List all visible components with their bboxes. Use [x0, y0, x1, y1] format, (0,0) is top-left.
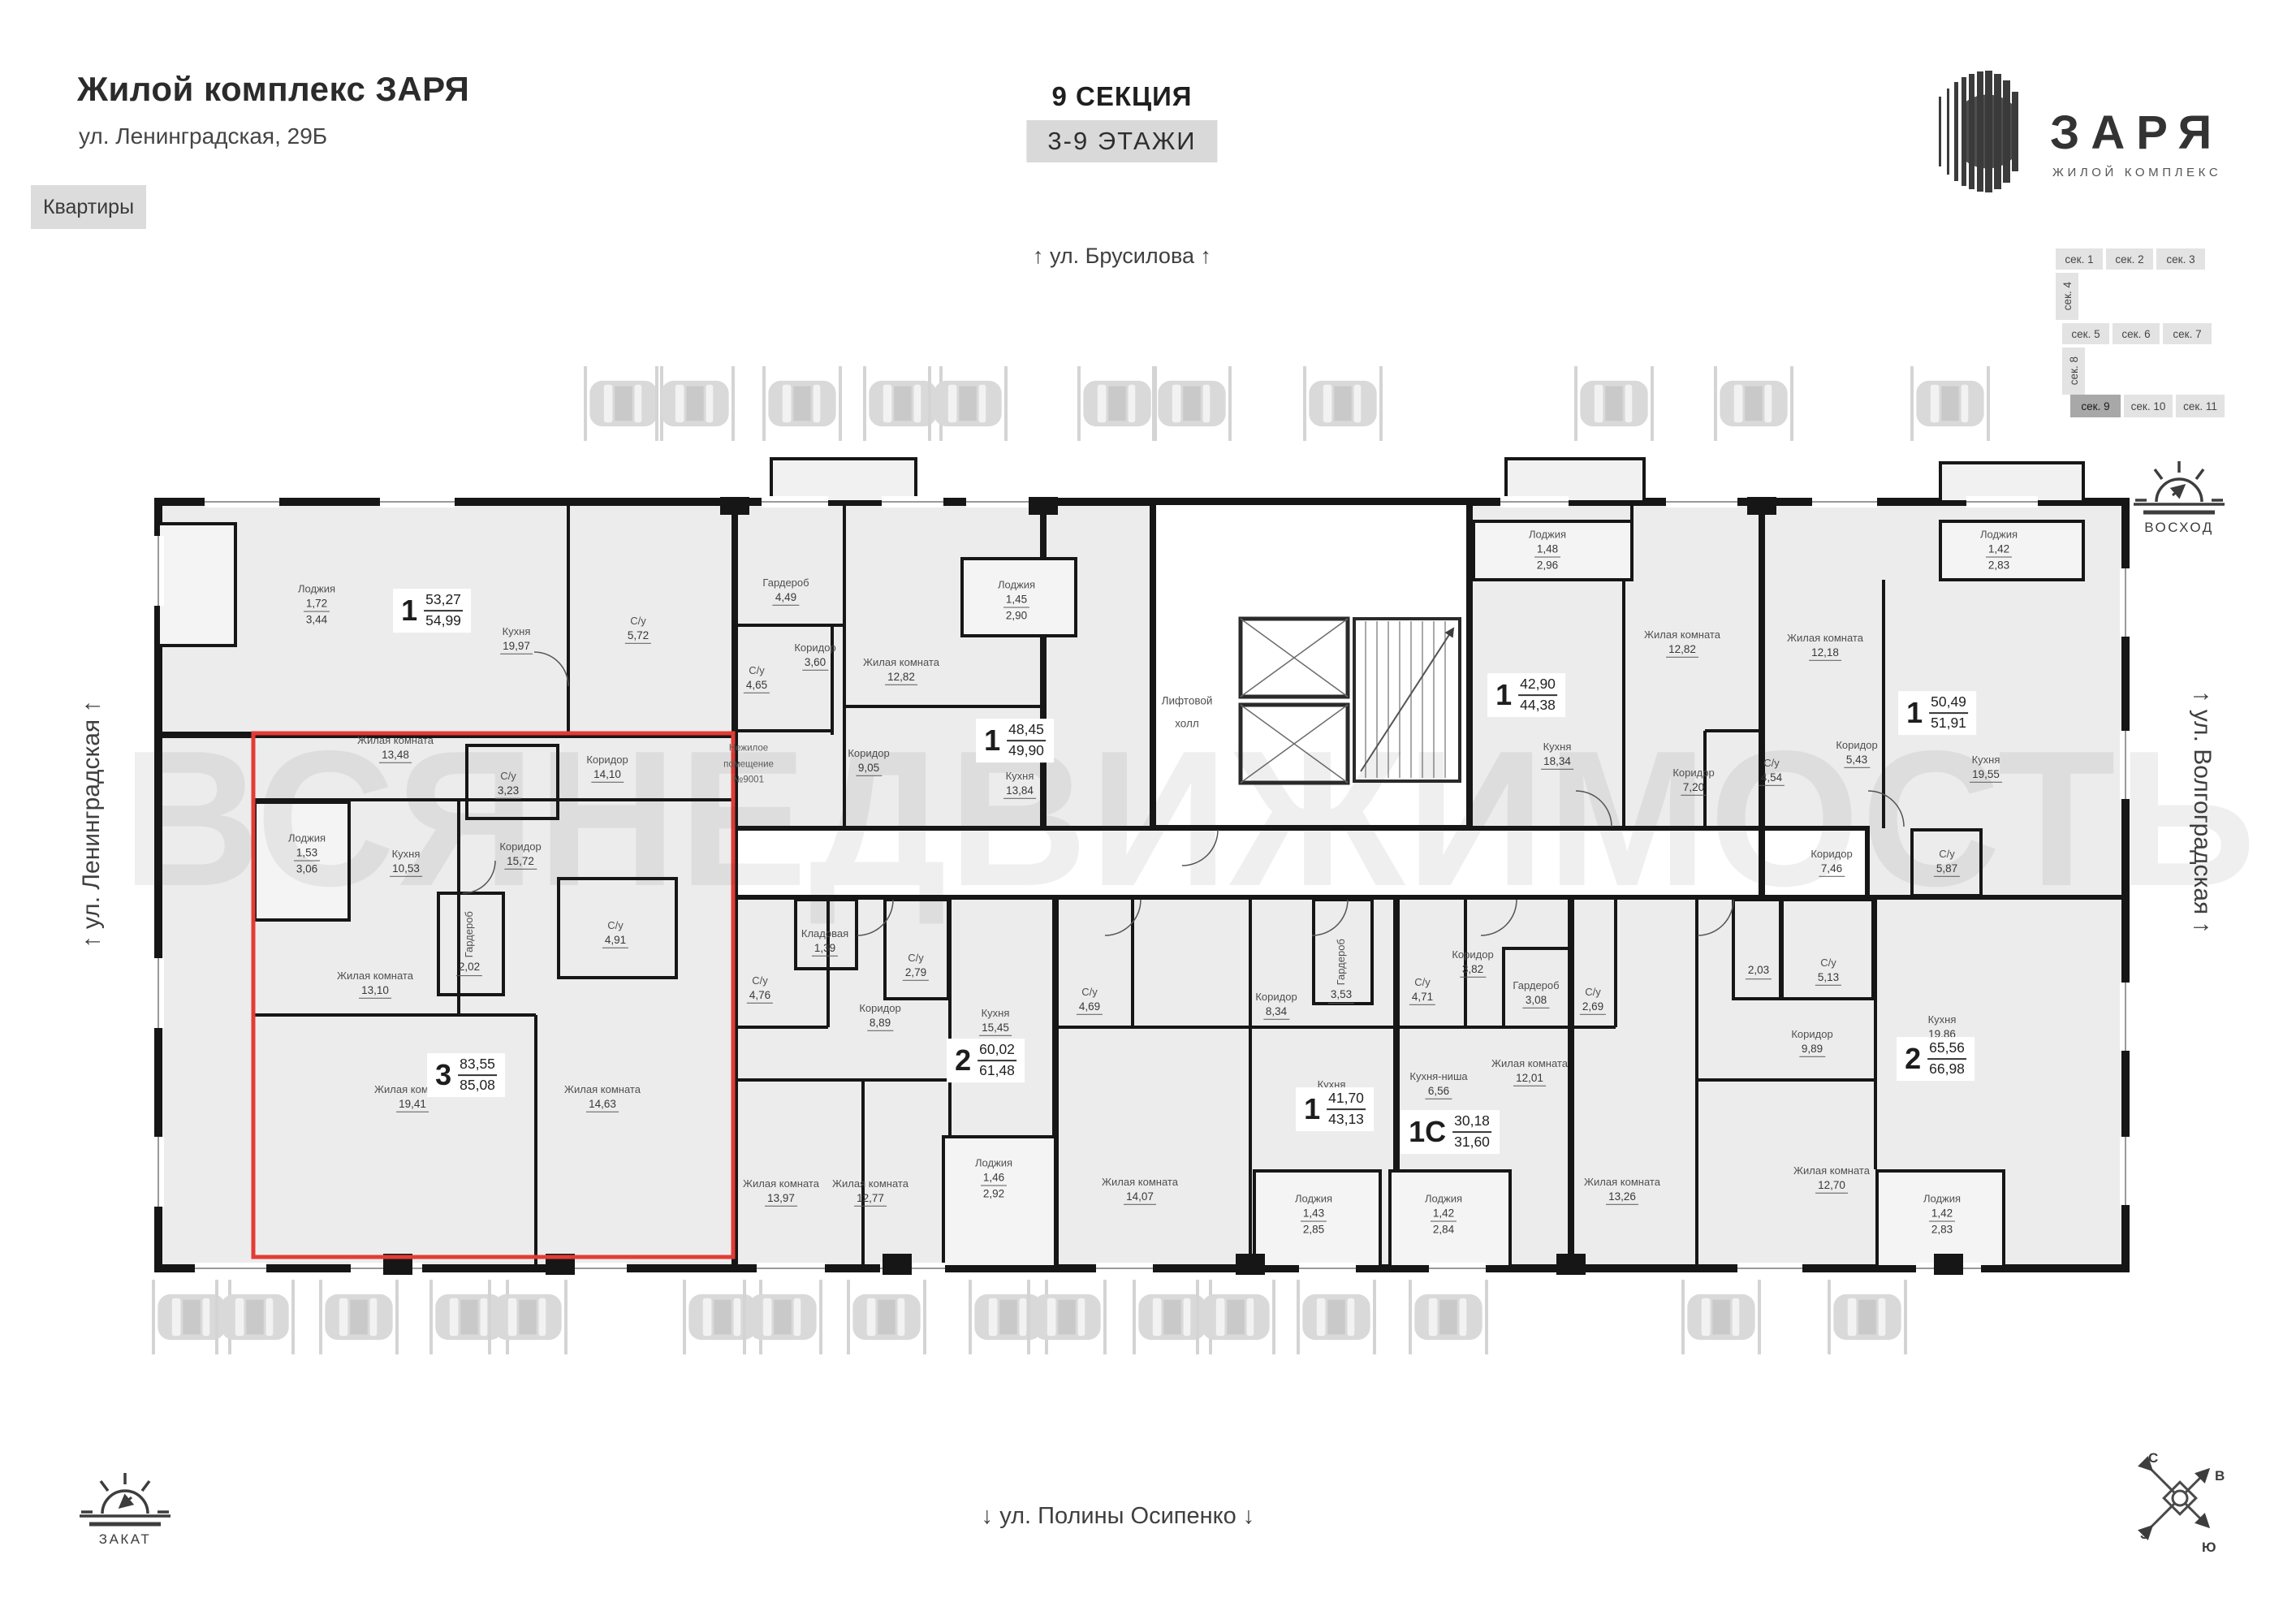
room-label: Жилая комната14,07	[1102, 1176, 1178, 1205]
apartment-total-area: 31,60	[1452, 1133, 1491, 1151]
apartment-total-area: 44,38	[1518, 696, 1557, 715]
apartment-badge: 1 42,9044,38	[1487, 673, 1565, 717]
room-label: Кухня15,45	[979, 1007, 1012, 1036]
apartment-living-area: 48,45	[1007, 721, 1046, 741]
apartment-badge: 1 48,4549,90	[976, 719, 1054, 762]
room-label: Кладовая1,39	[801, 927, 848, 957]
apartment-rooms: 1	[1495, 680, 1512, 710]
room-label: Лоджия1,422,83	[1980, 529, 2018, 573]
room-label: Жилая комната12,01	[1491, 1057, 1568, 1086]
room-label: Кухня19,97	[500, 625, 533, 654]
room-label: Гардероб2,02	[456, 911, 482, 976]
room-label: Гардероб3,53	[1328, 939, 1354, 1004]
apartment-rooms: 1	[401, 596, 417, 625]
room-label: Коридор15,72	[499, 840, 541, 870]
room-label: Жилая комната12,82	[1644, 628, 1720, 658]
room-label: Жилая комната12,70	[1793, 1164, 1870, 1194]
apartment-total-area: 66,98	[1927, 1060, 1966, 1078]
room-label: Кухня-ниша6,56	[1409, 1070, 1467, 1099]
room-label: Коридор7,46	[1810, 848, 1852, 877]
room-label: Жилая комната13,48	[357, 734, 434, 763]
apartment-badge: 1 53,2754,99	[393, 589, 471, 633]
room-label: Жилая комната12,82	[863, 656, 939, 685]
room-label: Коридор8,34	[1255, 991, 1297, 1020]
apartment-total-area: 43,13	[1327, 1110, 1366, 1129]
room-label: Жилая комната13,10	[337, 970, 413, 999]
apartment-rooms: 1	[1906, 698, 1923, 728]
lift-lobby-label: Лифтовой холл	[1162, 690, 1213, 736]
room-label: Лоджия1,482,96	[1529, 529, 1566, 573]
room-label: Лоджия1,723,44	[298, 583, 335, 628]
room-label: С/у4,69	[1077, 986, 1103, 1015]
apartment-badge: 2 65,5666,98	[1897, 1037, 1974, 1081]
room-label: С/у2,79	[903, 952, 929, 981]
room-label: 2,03	[1746, 963, 1772, 979]
room-label: Лоджия1,462,92	[975, 1157, 1012, 1202]
apartment-total-area: 54,99	[424, 611, 463, 630]
room-label: Коридор3,60	[794, 641, 835, 671]
apartment-badge: 2 60,0261,48	[947, 1039, 1025, 1082]
apartment-total-area: 51,91	[1929, 714, 1968, 732]
apartment-living-area: 41,70	[1327, 1090, 1366, 1110]
room-label: Кухня18,34	[1541, 741, 1573, 770]
apartment-living-area: 53,27	[424, 591, 463, 611]
room-label: Лоджия1,432,85	[1295, 1193, 1332, 1237]
room-label: С/у5,72	[625, 615, 651, 644]
room-label: Гардероб4,49	[762, 577, 809, 606]
room-label: Кухня13,84	[1003, 770, 1036, 799]
apartment-total-area: 49,90	[1007, 741, 1046, 760]
room-label: С/у4,54	[1759, 757, 1785, 786]
room-label: С/у2,69	[1580, 986, 1606, 1015]
room-label: Лоджия1,422,84	[1425, 1193, 1462, 1237]
room-label: Жилая комната12,18	[1787, 632, 1863, 661]
floor-plan-page: Жилой комплекс ЗАРЯ ул. Ленинградская, 2…	[0, 0, 2296, 1624]
room-label: Коридор9,89	[1791, 1028, 1832, 1057]
room-label: Коридор8,89	[859, 1002, 900, 1031]
apartment-rooms: 3	[435, 1060, 451, 1090]
room-label: С/у4,76	[747, 974, 773, 1004]
apartment-living-area: 83,55	[458, 1056, 497, 1076]
apartment-badge: 1 50,4951,91	[1898, 691, 1976, 735]
apartment-living-area: 30,18	[1452, 1112, 1491, 1133]
room-label: Гардероб3,08	[1513, 979, 1559, 1009]
room-label: Коридор7,20	[1672, 767, 1714, 796]
room-label: Жилая комната13,26	[1584, 1176, 1660, 1205]
apartment-badge: 1С 30,1831,60	[1400, 1110, 1500, 1154]
apartment-rooms: 1	[984, 726, 1000, 755]
apartment-living-area: 60,02	[978, 1041, 1016, 1061]
room-label: С/у3,23	[495, 770, 521, 799]
room-label: С/у4,91	[602, 919, 628, 948]
room-label: С/у4,65	[744, 664, 770, 693]
room-label: Лоджия1,452,90	[998, 579, 1035, 624]
room-label: Коридор5,43	[1836, 739, 1877, 768]
apartment-rooms: 2	[1905, 1044, 1921, 1073]
apartment-living-area: 50,49	[1929, 693, 1968, 714]
room-label: Коридор9,05	[848, 747, 889, 776]
room-label: Кухня19,55	[1970, 754, 2002, 783]
apartment-total-area: 85,08	[458, 1076, 497, 1095]
room-label: Лоджия1,533,06	[288, 832, 326, 877]
room-label: Коридор3,82	[1452, 948, 1493, 978]
room-label: Жилая комната12,77	[832, 1177, 908, 1207]
room-label: С/у5,87	[1934, 848, 1960, 877]
room-label: Кухня10,53	[390, 848, 422, 877]
room-label: Жилая комната13,97	[743, 1177, 819, 1207]
apartment-rooms: 2	[955, 1046, 971, 1075]
room-label: Коридор14,10	[586, 754, 628, 783]
room-label: Лоджия1,422,83	[1923, 1193, 1961, 1237]
apartment-rooms: 1С	[1409, 1117, 1446, 1147]
apartment-badge: 3 83,5585,08	[427, 1053, 505, 1097]
room-label: С/у5,13	[1815, 957, 1841, 986]
room-label: С/у4,71	[1409, 976, 1435, 1005]
apartment-living-area: 42,90	[1518, 676, 1557, 696]
apartment-rooms: 1	[1304, 1095, 1320, 1124]
apartment-living-area: 65,56	[1927, 1039, 1966, 1060]
apartment-badge: 1 41,7043,13	[1296, 1087, 1374, 1131]
room-label: Жилая комната14,63	[564, 1083, 641, 1112]
non-residential-label: Нежилое помещение №9001	[723, 741, 774, 789]
apartment-total-area: 61,48	[978, 1061, 1016, 1080]
